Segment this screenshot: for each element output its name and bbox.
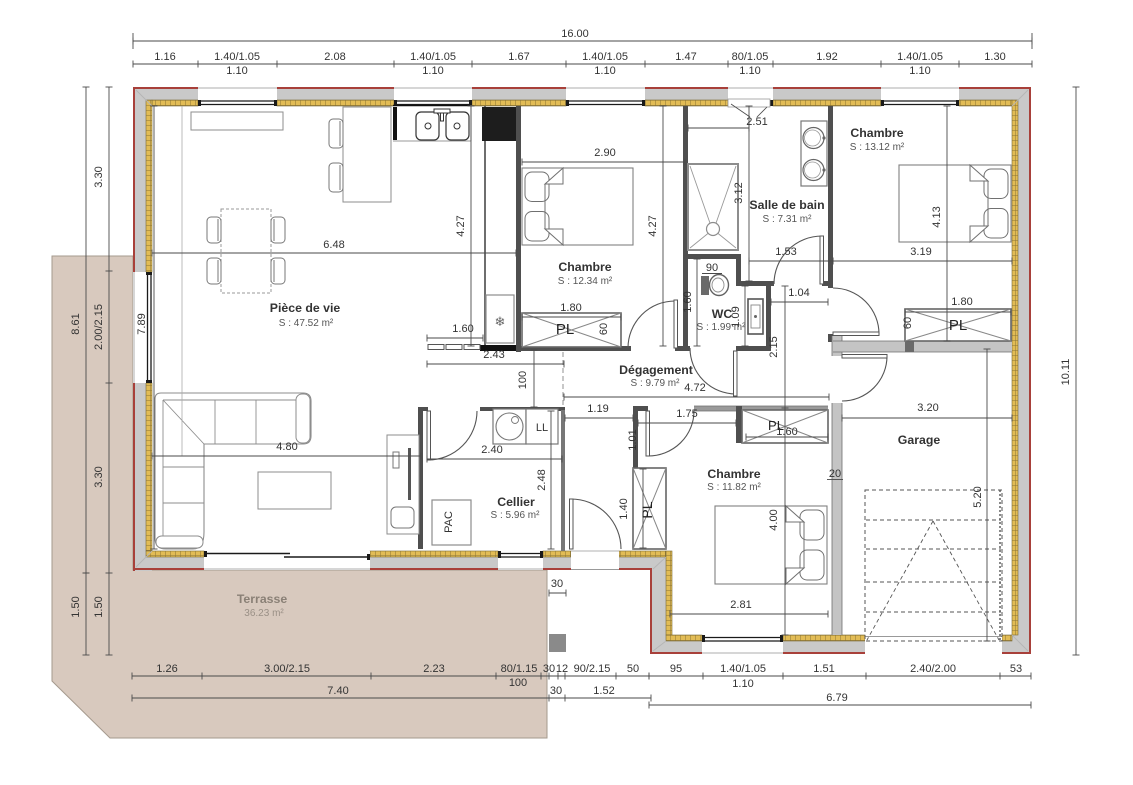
svg-text:1.40/1.05: 1.40/1.05: [897, 51, 943, 63]
svg-text:3.12: 3.12: [733, 182, 745, 203]
svg-text:Terrasse: Terrasse: [237, 592, 288, 606]
svg-text:2.48: 2.48: [536, 469, 548, 490]
svg-text:Salle de bain: Salle de bain: [749, 198, 824, 212]
svg-text:2.51: 2.51: [746, 116, 767, 128]
svg-text:1.51: 1.51: [813, 663, 834, 675]
svg-text:1.50: 1.50: [93, 596, 105, 617]
svg-text:1.10: 1.10: [739, 65, 760, 77]
svg-text:2.43: 2.43: [483, 349, 504, 361]
svg-text:5.20: 5.20: [972, 486, 984, 507]
svg-text:8.61: 8.61: [70, 313, 82, 334]
svg-text:1.40/1.05: 1.40/1.05: [214, 51, 260, 63]
svg-text:3.20: 3.20: [917, 402, 938, 414]
svg-text:Dégagement: Dégagement: [619, 363, 693, 377]
svg-text:2.90: 2.90: [594, 147, 615, 159]
svg-text:60: 60: [598, 323, 610, 335]
svg-text:53: 53: [1010, 663, 1022, 675]
svg-text:1.10: 1.10: [594, 65, 615, 77]
svg-text:1.80: 1.80: [560, 302, 581, 314]
svg-text:90/2.15: 90/2.15: [574, 663, 611, 675]
svg-text:❄: ❄: [495, 314, 506, 329]
svg-text:LL: LL: [536, 422, 548, 434]
svg-text:1.53: 1.53: [775, 246, 796, 258]
svg-text:80/1.15: 80/1.15: [501, 663, 538, 675]
svg-text:100: 100: [517, 371, 529, 389]
svg-text:1.92: 1.92: [816, 51, 837, 63]
svg-text:1.80: 1.80: [951, 296, 972, 308]
svg-text:PAC: PAC: [443, 511, 455, 533]
svg-text:1.60: 1.60: [776, 426, 797, 438]
svg-text:1.60: 1.60: [682, 291, 694, 312]
svg-text:6.48: 6.48: [323, 239, 344, 251]
svg-text:S : 9.79 m²: S : 9.79 m²: [631, 378, 681, 389]
svg-text:2.00/2.15: 2.00/2.15: [93, 304, 105, 350]
svg-text:2.15: 2.15: [768, 336, 780, 357]
svg-text:2.81: 2.81: [730, 599, 751, 611]
svg-text:PL: PL: [556, 321, 574, 338]
svg-text:1.50: 1.50: [70, 596, 82, 617]
svg-text:1.30: 1.30: [984, 51, 1005, 63]
svg-text:1.75: 1.75: [676, 408, 697, 420]
svg-text:Garage: Garage: [898, 433, 941, 447]
svg-text:PL: PL: [639, 501, 655, 518]
svg-text:4.27: 4.27: [455, 215, 467, 236]
svg-text:1.52: 1.52: [593, 685, 614, 697]
svg-text:Chambre: Chambre: [558, 260, 611, 274]
svg-text:Cellier: Cellier: [497, 495, 535, 509]
svg-text:1.10: 1.10: [909, 65, 930, 77]
svg-text:10.11: 10.11: [1060, 359, 1072, 386]
svg-text:16.00: 16.00: [561, 28, 589, 40]
svg-text:WC: WC: [712, 307, 733, 321]
svg-text:Pièce de vie: Pièce de vie: [270, 301, 341, 315]
svg-text:30: 30: [550, 685, 562, 697]
svg-text:S : 7.31 m²: S : 7.31 m²: [763, 214, 813, 225]
svg-text:1.67: 1.67: [508, 51, 529, 63]
svg-text:30: 30: [551, 578, 563, 590]
svg-text:3.19: 3.19: [910, 246, 931, 258]
svg-text:1.60: 1.60: [452, 323, 473, 335]
svg-text:S : 11.82 m²: S : 11.82 m²: [707, 482, 761, 493]
svg-text:1.26: 1.26: [156, 663, 177, 675]
svg-text:1.10: 1.10: [732, 678, 753, 690]
svg-text:S : 12.34 m²: S : 12.34 m²: [558, 276, 613, 287]
svg-text:50: 50: [627, 663, 639, 675]
svg-text:1.10: 1.10: [226, 65, 247, 77]
svg-text:1.47: 1.47: [675, 51, 696, 63]
svg-text:3.30: 3.30: [93, 166, 105, 187]
svg-text:6.79: 6.79: [826, 692, 847, 704]
svg-text:1.16: 1.16: [154, 51, 175, 63]
svg-text:7.40: 7.40: [327, 685, 348, 697]
svg-text:4.00: 4.00: [768, 509, 780, 530]
svg-text:PL: PL: [949, 317, 967, 334]
svg-text:3.00/2.15: 3.00/2.15: [264, 663, 310, 675]
svg-text:4.80: 4.80: [276, 441, 297, 453]
svg-text:2.40/2.00: 2.40/2.00: [910, 663, 956, 675]
svg-text:1.10: 1.10: [422, 65, 443, 77]
svg-text:2.40: 2.40: [481, 444, 502, 456]
svg-text:1.01: 1.01: [627, 429, 639, 450]
svg-text:S : 1.99 m²: S : 1.99 m²: [697, 322, 747, 333]
svg-text:60: 60: [902, 317, 914, 329]
svg-text:1.40/1.05: 1.40/1.05: [410, 51, 456, 63]
svg-text:95: 95: [670, 663, 682, 675]
svg-text:S : 13.12 m²: S : 13.12 m²: [850, 142, 905, 153]
svg-text:2.23: 2.23: [423, 663, 444, 675]
svg-text:Chambre: Chambre: [850, 126, 903, 140]
svg-text:4.27: 4.27: [647, 215, 659, 236]
svg-text:1.19: 1.19: [587, 403, 608, 415]
svg-text:80/1.05: 80/1.05: [732, 51, 769, 63]
svg-text:30: 30: [543, 663, 555, 675]
svg-text:Chambre: Chambre: [707, 467, 760, 481]
svg-text:1.40/1.05: 1.40/1.05: [720, 663, 766, 675]
svg-text:7.89: 7.89: [136, 313, 148, 334]
svg-text:1.40/1.05: 1.40/1.05: [582, 51, 628, 63]
svg-text:36.23 m²: 36.23 m²: [244, 608, 284, 619]
svg-text:90: 90: [706, 262, 718, 274]
svg-text:20: 20: [829, 468, 841, 480]
svg-text:2.08: 2.08: [324, 51, 345, 63]
svg-text:4.13: 4.13: [931, 206, 943, 227]
svg-text:12: 12: [556, 663, 568, 675]
svg-text:3.30: 3.30: [93, 466, 105, 487]
svg-text:S : 47.52 m²: S : 47.52 m²: [279, 318, 334, 329]
svg-text:S : 5.96 m²: S : 5.96 m²: [491, 510, 541, 521]
svg-text:1.04: 1.04: [788, 287, 809, 299]
svg-text:1.40: 1.40: [618, 498, 630, 519]
svg-text:100: 100: [509, 677, 527, 689]
svg-text:4.72: 4.72: [684, 382, 705, 394]
